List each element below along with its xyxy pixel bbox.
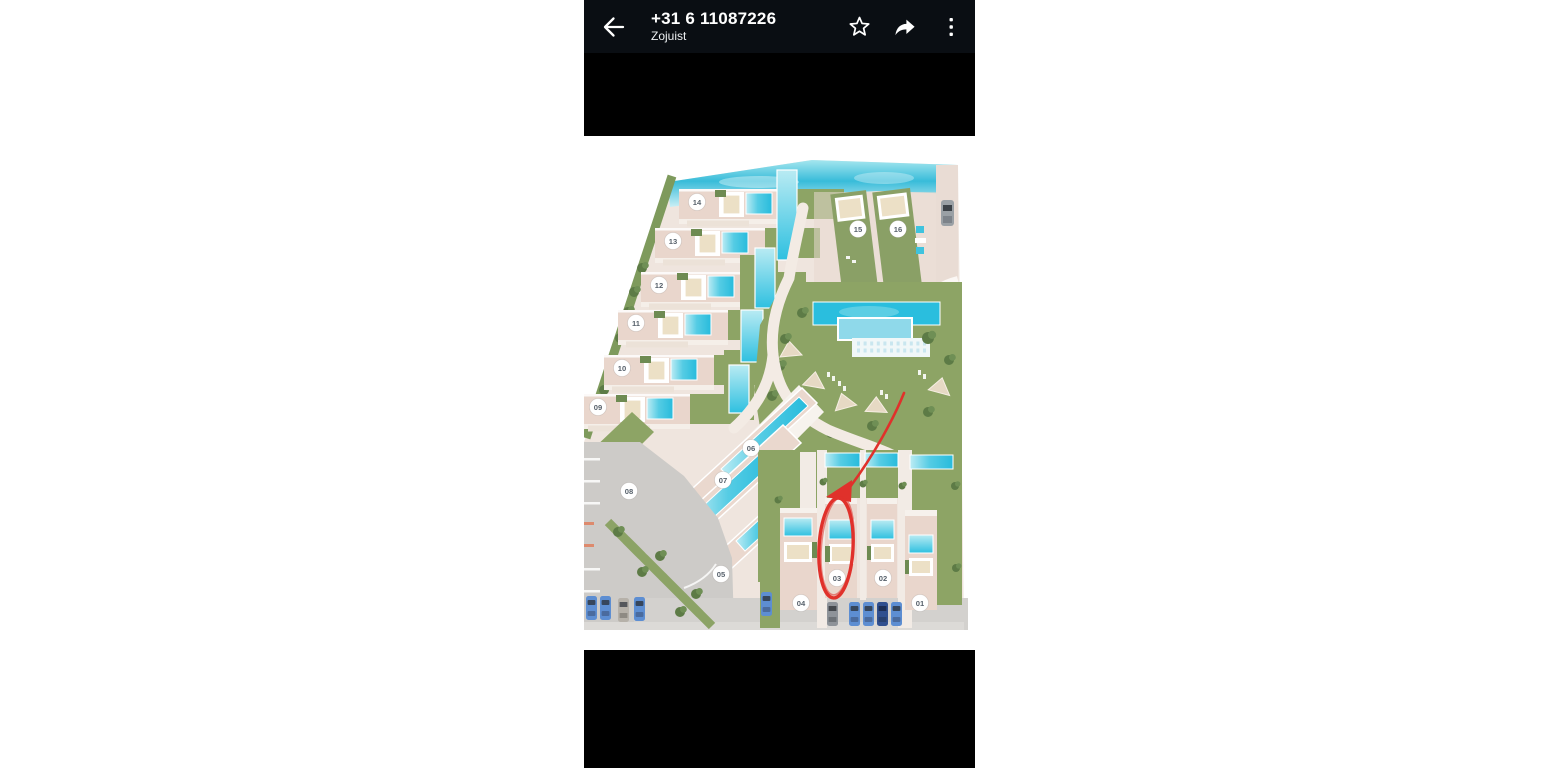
topbar-actions (844, 7, 975, 47)
villa-number-04: 04 (797, 599, 806, 608)
site-plan-map: 01020304050607080910111213141516 (584, 150, 968, 632)
favorite-button[interactable] (844, 7, 874, 47)
chat-media-topbar: +31 6 11087226 Zojuist (584, 0, 975, 53)
villa-number-03: 03 (833, 574, 841, 583)
timestamp-label: Zojuist (651, 29, 776, 44)
letterbox-top (584, 53, 975, 136)
villa-number-06: 06 (747, 444, 755, 453)
villa-number-09: 09 (594, 403, 602, 412)
villa-number-01: 01 (916, 599, 925, 608)
contact-phone-number: +31 6 11087226 (651, 9, 776, 28)
villa-number-12: 12 (655, 281, 663, 290)
villa-number-15: 15 (854, 225, 863, 234)
villa-number-14: 14 (693, 198, 702, 207)
villa-number-08: 08 (625, 487, 633, 496)
villa-number-16: 16 (894, 225, 902, 234)
more-vertical-icon (940, 15, 962, 39)
forward-button[interactable] (890, 7, 920, 47)
villa-number-11: 11 (632, 319, 641, 328)
villa-number-07: 07 (719, 476, 727, 485)
villa-number-13: 13 (669, 237, 677, 246)
letterbox-bottom (584, 650, 975, 768)
back-arrow-icon (599, 14, 625, 40)
villa-number-02: 02 (879, 574, 887, 583)
parked-car (941, 200, 954, 226)
villa-number-05: 05 (717, 570, 726, 579)
phone-screen: +31 6 11087226 Zojuist (584, 0, 975, 768)
photo-viewer[interactable]: 01020304050607080910111213141516 (584, 136, 975, 650)
back-button[interactable] (597, 7, 627, 47)
share-forward-icon (893, 15, 917, 39)
menu-button[interactable] (936, 7, 966, 47)
star-icon (848, 15, 871, 38)
contact-info[interactable]: +31 6 11087226 Zojuist (651, 9, 776, 44)
villa-number-10: 10 (618, 364, 626, 373)
